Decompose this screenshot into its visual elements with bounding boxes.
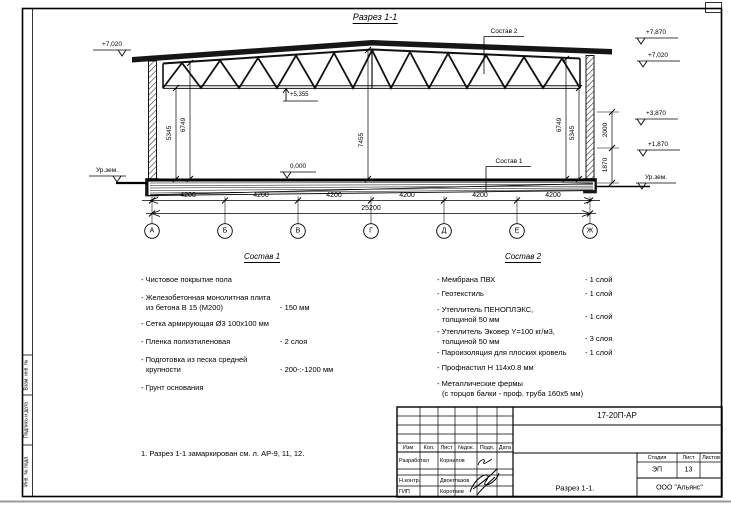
list-item: - Геотекстиль <box>437 289 484 299</box>
doc-code: 17-20П-АР <box>597 412 637 420</box>
dim-right-lower: 1870 <box>603 158 610 172</box>
callout-sostav1: Состав 1 <box>496 159 523 166</box>
elevation-floor: 0,000 <box>290 164 306 171</box>
list-item: - Металлические фермы(с торцов балки - п… <box>437 379 583 398</box>
list-item: - Чистовое покрытие пола <box>141 275 232 285</box>
axis-bubble: А <box>150 228 155 235</box>
drawing-sheet: Разрез 1-1 +7,020 Ур.зем. +7,870 +7,020 … <box>0 0 731 507</box>
tb-name: Коротаев <box>440 489 464 495</box>
list-item-value: - 200-:-1200 мм <box>280 365 333 375</box>
dim-bay: 4200 <box>253 192 269 199</box>
elevation-right-ground: Ур.зем. <box>645 175 667 182</box>
list-item-value: - 1 слой <box>585 289 612 299</box>
elevation-right-mid-upper: +3,870 <box>646 111 666 118</box>
signature-1 <box>478 459 492 465</box>
dim-bay: 4200 <box>326 192 342 199</box>
tb-header-podp: Подп. <box>480 445 495 451</box>
tb-header-ndoc: №док. <box>458 445 474 451</box>
tb-name: Двоеглазов <box>440 478 469 484</box>
sostav2-heading: Состав 2 <box>505 253 541 263</box>
axis-bubble: В <box>296 228 301 235</box>
dim-total: 25200 <box>361 205 380 212</box>
dim-left-inner: 5345 <box>167 126 174 140</box>
list-item: - Пароизоляция для плоских кровель <box>437 348 566 358</box>
list-item-value: - 3 слоя <box>585 334 612 344</box>
elevation-right-mid-lower: +1,870 <box>648 142 668 149</box>
tb-header-list: Лист <box>441 445 453 451</box>
tb-company: ООО "Альянс" <box>656 485 703 492</box>
tb-name: Корнилов <box>440 458 465 464</box>
elevation-truss-bottom: +5,355 <box>290 92 309 98</box>
tb-header-izm: Изм <box>403 445 413 451</box>
tb-stage-value: ЭП <box>652 467 662 474</box>
list-item: - Пленка полиэтиленовая <box>141 337 230 347</box>
list-item: - Подготовка из песка среднейкрупности <box>141 355 247 374</box>
dim-bay: 4200 <box>399 192 415 199</box>
tb-role: Н.контр. <box>399 478 420 484</box>
tb-stage-label: Стадия <box>648 455 667 461</box>
tb-sheet-label: Лист <box>683 455 695 461</box>
dim-right-upper: 2000 <box>603 123 610 137</box>
list-item: - Мембрана ПВХ <box>437 275 495 285</box>
dim-bay: 4200 <box>180 192 196 199</box>
list-item-value: - 150 мм <box>280 303 310 313</box>
list-item-value: - 2 слоя <box>280 337 307 347</box>
list-item: - Утеплитель ПЕНОПЛЭКС,толщиной 50 мм <box>437 305 533 324</box>
dim-center: 7455 <box>359 133 366 147</box>
list-item-value: - 1 слой <box>585 312 612 322</box>
sostav1-heading: Состав 1 <box>244 253 280 263</box>
sheet-frame <box>0 3 731 502</box>
elevation-left-ground: Ур.зем. <box>96 168 118 175</box>
stamp-podpis-data: Подпись и дата <box>25 402 30 438</box>
axis-bubble: Е <box>515 228 520 235</box>
elevation-right-eave: +7,020 <box>648 53 668 60</box>
axis-bubble: Ж <box>587 228 593 235</box>
stamp-vzam-inv: Взам. инв. № <box>25 360 30 391</box>
dim-right-inner: 5345 <box>570 126 577 140</box>
elevation-right-ridge: +7,870 <box>646 30 666 37</box>
list-item: - Утеплитель Эковер Y=100 кг/м3,толщиной… <box>437 327 555 346</box>
elevation-left-eave: +7,020 <box>102 42 122 49</box>
dim-right-outer: 6749 <box>557 118 564 132</box>
list-item-value: - 1 слой <box>585 275 612 285</box>
axis-bubble: Б <box>223 228 228 235</box>
list-item: - Железобетонная монолитная плитаиз бето… <box>141 293 271 312</box>
vertical-dimensions <box>173 47 619 186</box>
drawing-note: 1. Разрез 1-1 замаркирован см. л. АР-9, … <box>141 449 304 458</box>
axis-bubble: Д <box>442 228 447 235</box>
tb-role: Разработал <box>399 458 429 464</box>
tb-role: ГИП <box>399 489 410 495</box>
section-title: Разрез 1-1 <box>353 13 398 24</box>
tb-drawing-title: Разрез 1-1. <box>556 484 595 492</box>
signature-2 <box>470 469 499 495</box>
tb-header-data: Дата <box>499 445 511 451</box>
tb-header-kol: Кол. <box>424 445 435 451</box>
callout-sostav2: Состав 2 <box>491 29 518 36</box>
list-item-value: - 1 слой <box>585 348 612 358</box>
tb-sheets-label: Листов <box>702 455 720 461</box>
dim-bay: 4200 <box>472 192 488 199</box>
tb-sheet-value: 13 <box>685 467 693 474</box>
dim-bay: 4200 <box>545 192 561 199</box>
list-item: - Профнастил Н 114х0.8 мм <box>437 363 534 373</box>
dim-left-outer: 6749 <box>181 118 188 132</box>
stamp-inv-podl: Инв. № подл. <box>25 455 30 486</box>
list-item: - Сетка армирующая Ø3 100х100 мм <box>141 319 269 329</box>
axis-bubble: Г <box>369 228 373 235</box>
list-item: - Грунт основания <box>141 383 203 393</box>
callout-leaders <box>484 37 531 192</box>
drawing-canvas <box>0 0 731 507</box>
